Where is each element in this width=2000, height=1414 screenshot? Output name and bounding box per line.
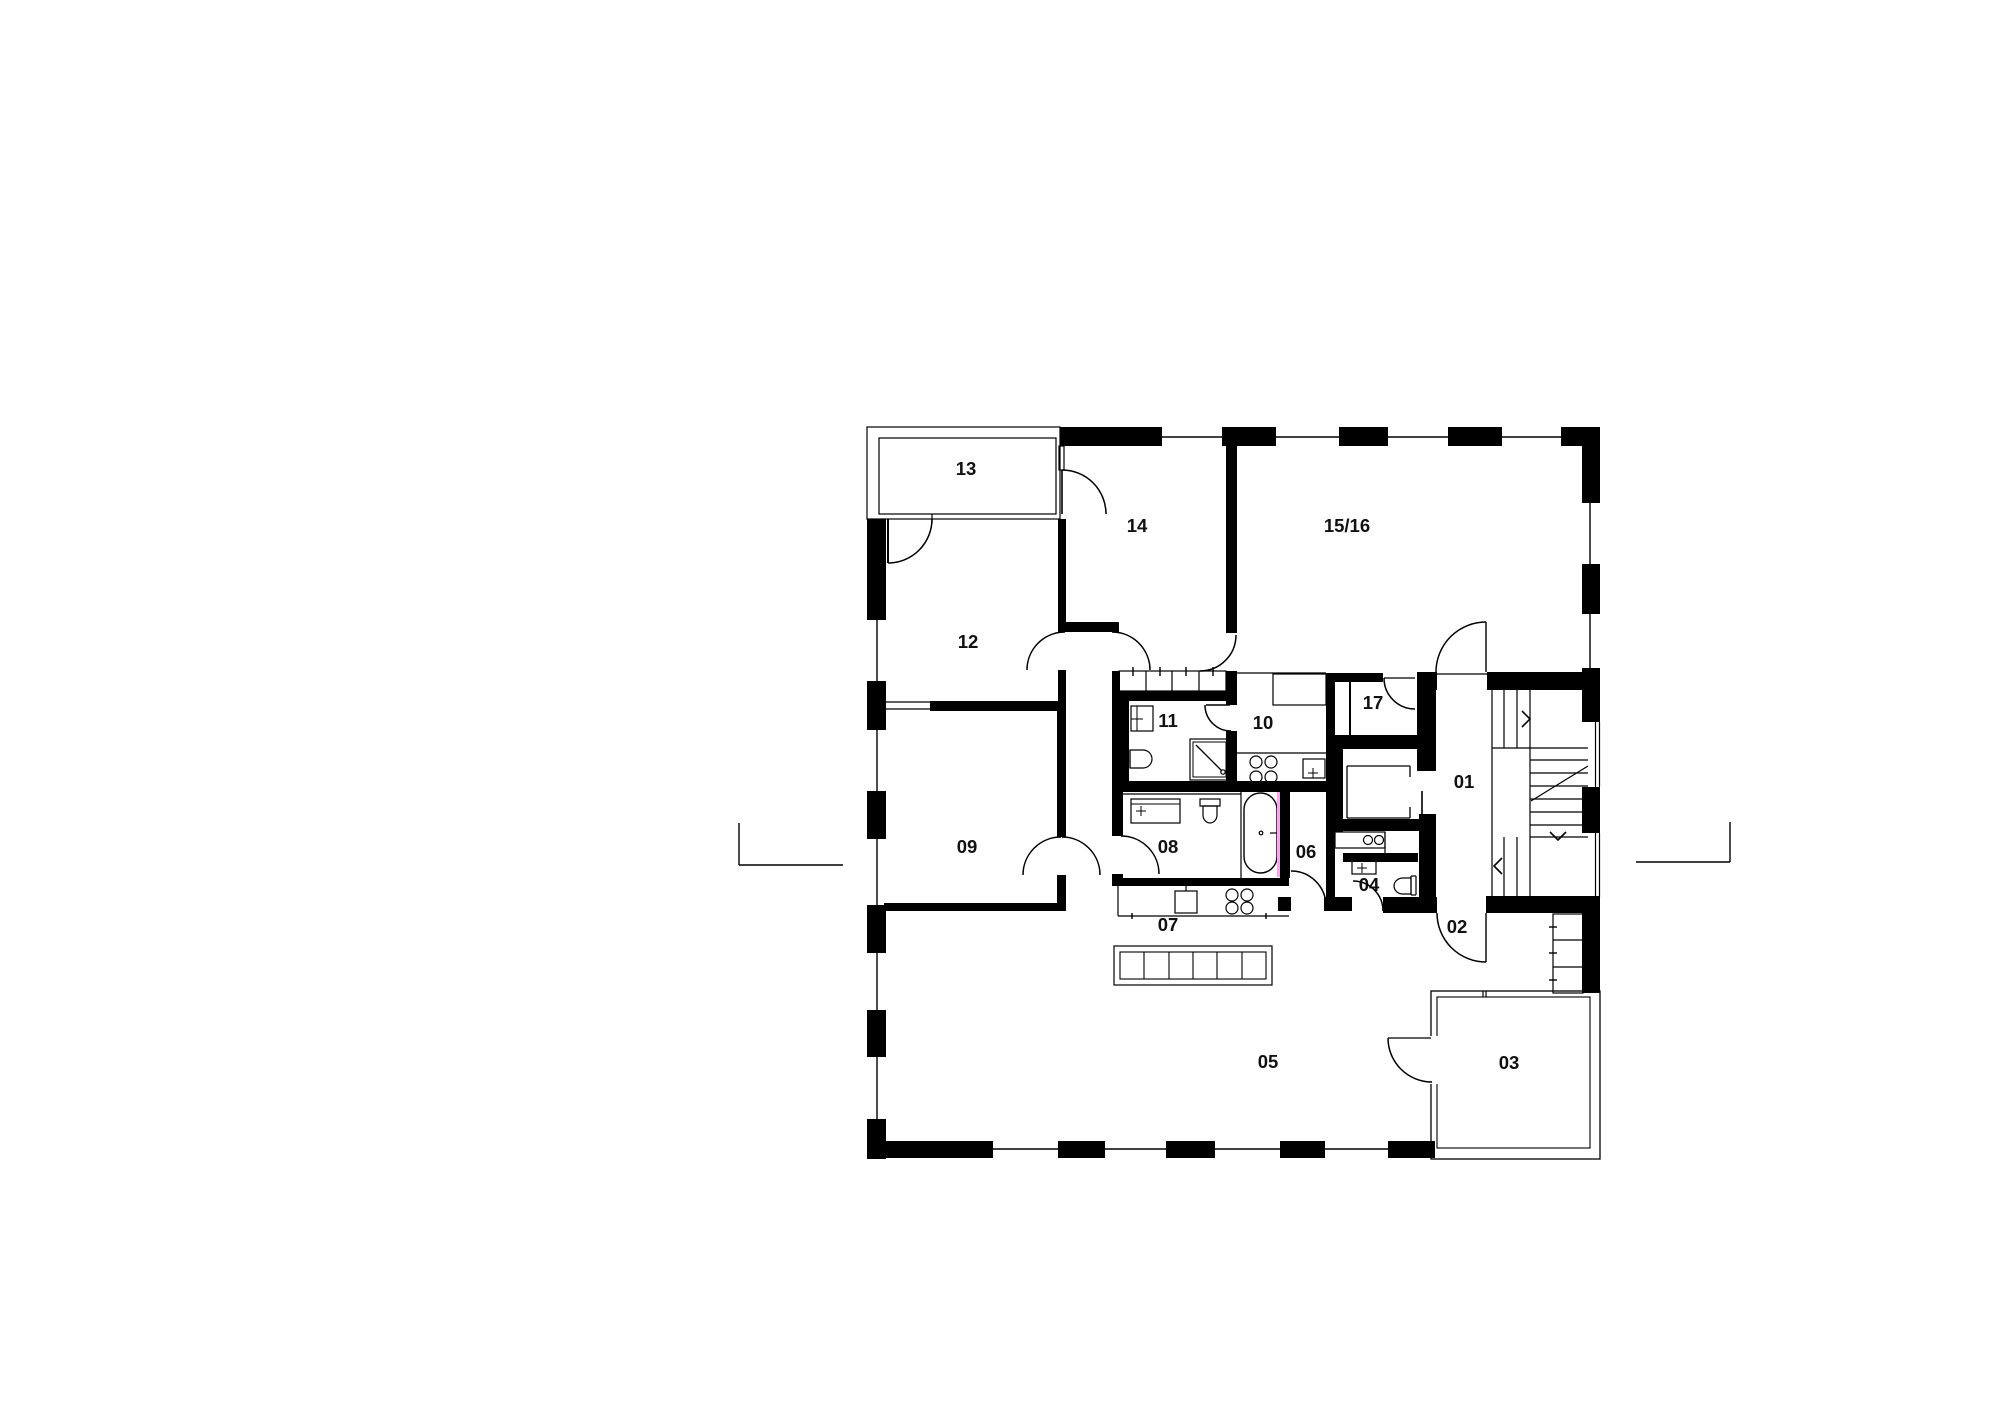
svg-text:11: 11	[1158, 710, 1178, 731]
svg-text:14: 14	[1127, 515, 1148, 536]
svg-text:02: 02	[1447, 916, 1468, 937]
svg-text:09: 09	[957, 836, 978, 857]
svg-text:07: 07	[1158, 914, 1179, 935]
svg-text:15/16: 15/16	[1324, 515, 1370, 536]
svg-text:01: 01	[1454, 771, 1475, 792]
svg-text:06: 06	[1296, 841, 1317, 862]
svg-text:13: 13	[956, 458, 977, 479]
svg-text:17: 17	[1363, 692, 1384, 713]
svg-text:08: 08	[1158, 836, 1179, 857]
svg-text:10: 10	[1253, 712, 1274, 733]
svg-text:03: 03	[1499, 1052, 1520, 1073]
svg-text:05: 05	[1258, 1051, 1279, 1072]
svg-text:12: 12	[958, 631, 979, 652]
